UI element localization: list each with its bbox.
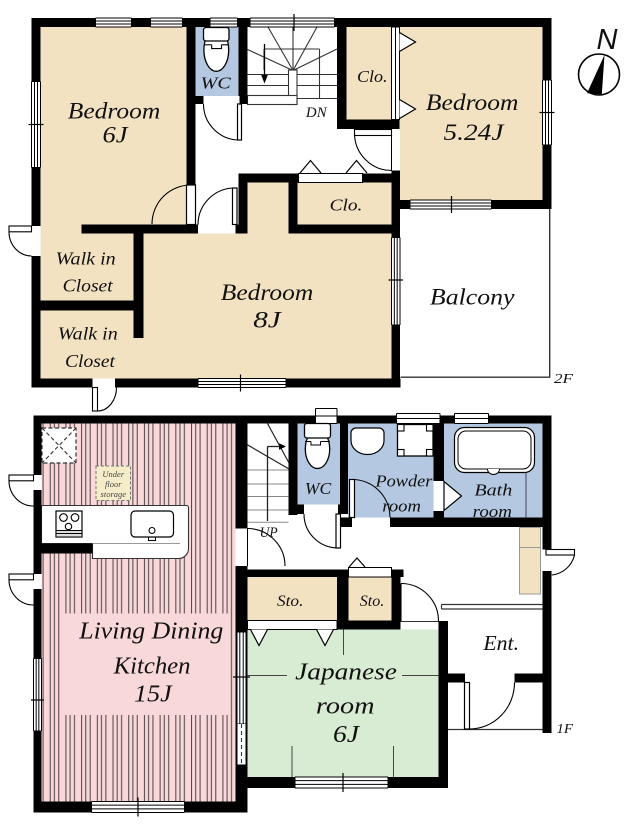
svg-text:Closet: Closet: [63, 276, 114, 296]
svg-text:15J: 15J: [134, 682, 173, 708]
svg-text:N: N: [597, 24, 618, 56]
svg-text:Japanese: Japanese: [295, 660, 397, 686]
svg-text:2F: 2F: [554, 372, 574, 387]
svg-text:Bedroom: Bedroom: [221, 280, 314, 305]
svg-text:Powder: Powder: [374, 472, 432, 491]
svg-text:8J: 8J: [253, 308, 283, 333]
svg-text:Bedroom: Bedroom: [426, 90, 519, 115]
svg-text:6J: 6J: [103, 123, 130, 148]
svg-text:room: room: [382, 497, 421, 516]
svg-text:room: room: [316, 694, 375, 720]
svg-text:WC: WC: [201, 74, 232, 93]
svg-text:DN: DN: [305, 105, 328, 121]
svg-text:Bedroom: Bedroom: [68, 99, 161, 124]
svg-text:Kitchen: Kitchen: [113, 654, 191, 680]
svg-text:floor: floor: [105, 479, 122, 489]
svg-text:Sto.: Sto.: [277, 593, 303, 610]
svg-text:Balcony: Balcony: [430, 285, 515, 310]
svg-text:WC: WC: [305, 479, 332, 498]
svg-text:Ent.: Ent.: [482, 631, 519, 655]
svg-text:Sto.: Sto.: [360, 593, 385, 610]
svg-text:room: room: [473, 502, 512, 521]
svg-text:Living Dining: Living Dining: [78, 619, 223, 645]
svg-text:Clo.: Clo.: [357, 67, 388, 86]
svg-text:Bath: Bath: [474, 481, 512, 500]
svg-text:6J: 6J: [333, 722, 361, 748]
svg-text:Under: Under: [102, 469, 124, 479]
svg-text:Clo.: Clo.: [330, 196, 363, 215]
svg-text:1F: 1F: [557, 722, 574, 737]
svg-text:Closet: Closet: [65, 351, 116, 371]
svg-text:5.24J: 5.24J: [444, 120, 506, 145]
svg-text:Walk in: Walk in: [56, 249, 116, 269]
svg-text:storage: storage: [101, 489, 127, 499]
svg-text:UP: UP: [260, 525, 278, 541]
svg-text:Walk in: Walk in: [58, 324, 118, 344]
